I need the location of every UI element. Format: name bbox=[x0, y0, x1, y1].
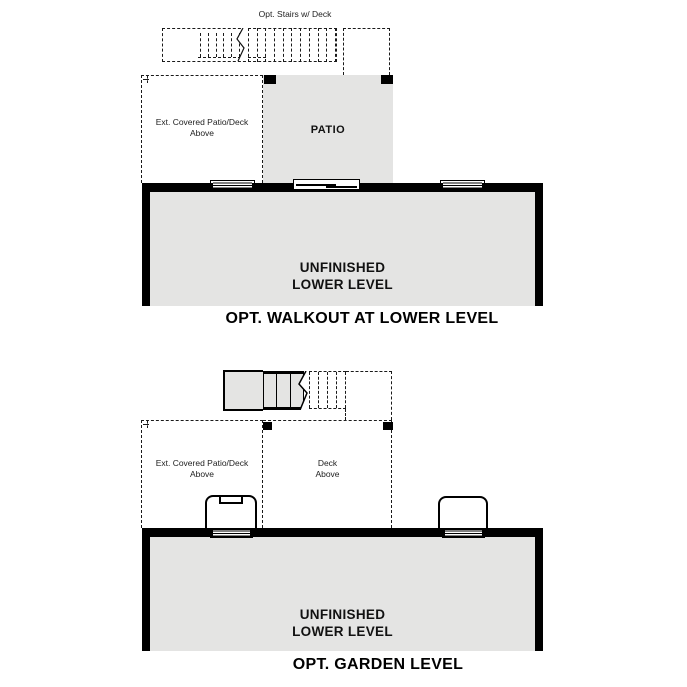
sliding-door bbox=[293, 179, 360, 190]
patio-post-right bbox=[381, 75, 393, 84]
deck-landing-outline bbox=[343, 28, 390, 75]
plan-caption-walkout: OPT. WALKOUT AT LOWER LEVEL bbox=[212, 310, 512, 328]
ext-covered-patio-label: Ext. Covered Patio/Deck Above bbox=[141, 117, 263, 140]
stair-break-line bbox=[296, 371, 310, 410]
plan-walkout: Opt. Stairs w/ Deck Ext. Covered Patio/D… bbox=[0, 0, 687, 340]
window bbox=[210, 528, 253, 538]
window bbox=[442, 528, 485, 538]
window-well bbox=[205, 495, 257, 529]
ext-covered-patio-label: Ext. Covered Patio/Deck Above bbox=[141, 458, 263, 481]
window bbox=[210, 180, 255, 190]
room-label-garden: UNFINISHED LOWER LEVEL bbox=[142, 606, 543, 640]
deck-post-left bbox=[263, 422, 272, 430]
deck-landing-connector bbox=[345, 409, 346, 420]
stair-landing bbox=[223, 370, 263, 411]
window bbox=[440, 180, 485, 190]
window-well bbox=[438, 496, 488, 529]
plan-garden: Ext. Covered Patio/Deck Above Deck Above… bbox=[0, 340, 687, 687]
deck-landing-outline bbox=[346, 371, 392, 420]
corner-tick bbox=[143, 424, 149, 425]
patio-label: PATIO bbox=[263, 124, 393, 136]
stair-break-line bbox=[234, 28, 247, 61]
corner-tick bbox=[143, 79, 149, 80]
deck-post-right bbox=[383, 422, 393, 430]
deck-above-label: Deck Above bbox=[263, 458, 392, 481]
sliding-door-panel bbox=[326, 186, 357, 188]
room-label-walkout: UNFINISHED LOWER LEVEL bbox=[142, 259, 543, 293]
well-ladder-notch bbox=[219, 497, 243, 504]
stair-treads-lower bbox=[248, 28, 336, 62]
patio-post-left bbox=[264, 75, 276, 84]
plan-caption-garden: OPT. GARDEN LEVEL bbox=[228, 656, 528, 674]
stair-treads-dashed bbox=[309, 371, 346, 409]
opt-stairs-label: Opt. Stairs w/ Deck bbox=[162, 9, 428, 20]
floorplan-page: Opt. Stairs w/ Deck Ext. Covered Patio/D… bbox=[0, 0, 687, 687]
